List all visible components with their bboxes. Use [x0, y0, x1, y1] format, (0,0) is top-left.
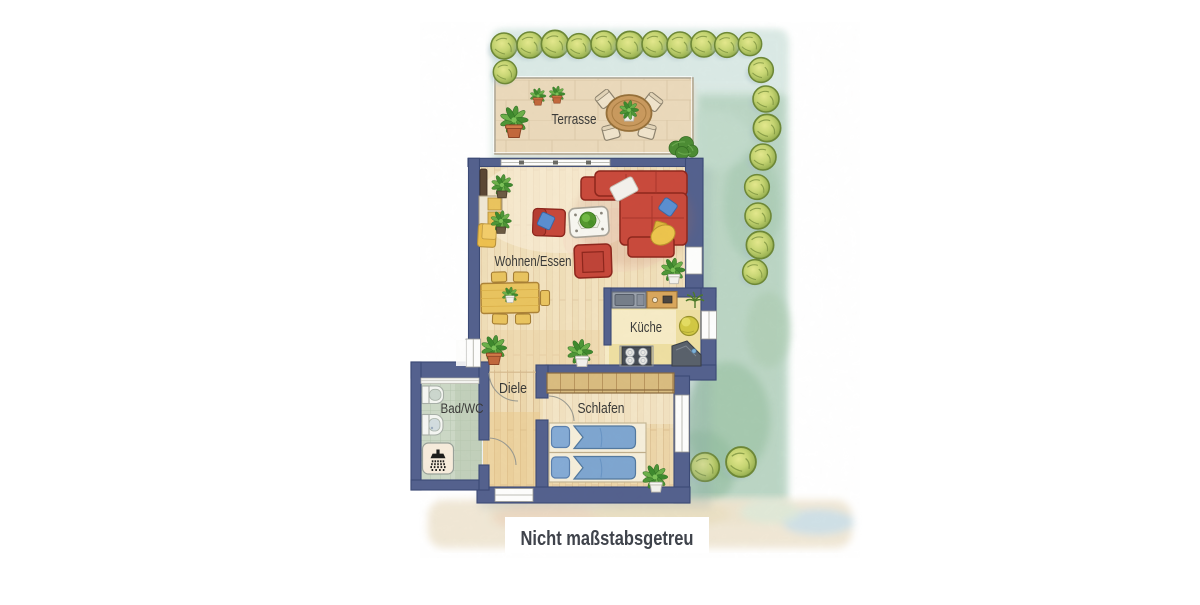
svg-text:Nicht maßstabsgetreu: Nicht maßstabsgetreu	[521, 528, 694, 550]
